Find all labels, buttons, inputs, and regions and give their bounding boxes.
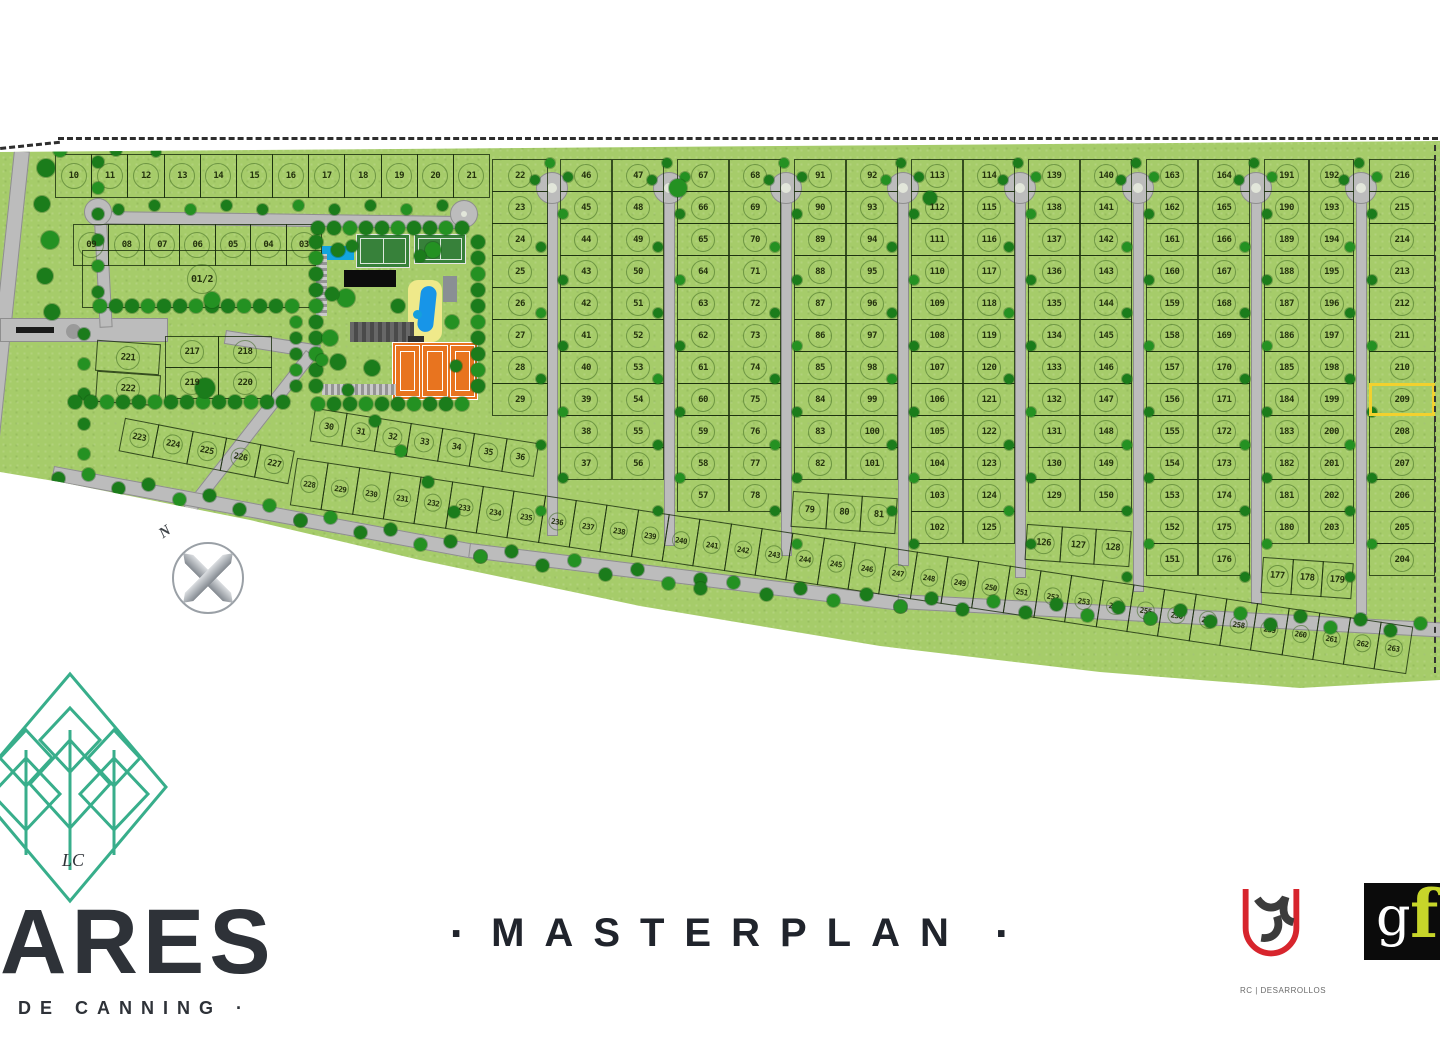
lot-number: 218 bbox=[238, 347, 253, 357]
lot-number: 87 bbox=[815, 299, 825, 309]
tree bbox=[887, 506, 897, 516]
lot-44: 44 bbox=[560, 223, 612, 256]
tree bbox=[1354, 613, 1367, 626]
lot-218: 218 bbox=[218, 336, 272, 368]
lot-number: 162 bbox=[1165, 203, 1180, 213]
tree bbox=[78, 328, 90, 340]
tree bbox=[558, 275, 568, 285]
tree bbox=[909, 407, 919, 417]
lot-number: 123 bbox=[982, 459, 997, 469]
lot-number: 129 bbox=[1047, 491, 1062, 501]
lot-number: 159 bbox=[1165, 299, 1180, 309]
lot-129: 129 bbox=[1028, 479, 1080, 512]
lot-number: 111 bbox=[930, 235, 945, 245]
tree bbox=[309, 267, 323, 281]
lot-167: 167 bbox=[1198, 255, 1250, 288]
lot-38: 38 bbox=[560, 415, 612, 448]
lot-column: 140141142143144145146147148149150 bbox=[1080, 160, 1132, 512]
tree bbox=[1354, 158, 1364, 168]
lot-number: 147 bbox=[1099, 395, 1114, 405]
lot-number: 120 bbox=[982, 363, 997, 373]
tree bbox=[675, 407, 685, 417]
lot-number: 209 bbox=[1395, 395, 1410, 405]
lot-71: 71 bbox=[729, 255, 781, 288]
tree bbox=[1367, 473, 1377, 483]
page-title: MASTERPLAN bbox=[491, 911, 969, 956]
tree bbox=[1262, 209, 1272, 219]
tree bbox=[309, 283, 323, 297]
tree bbox=[1122, 242, 1132, 252]
tree bbox=[1019, 606, 1032, 619]
tree bbox=[1004, 374, 1014, 384]
lot-135: 135 bbox=[1028, 287, 1080, 320]
tree bbox=[909, 341, 919, 351]
lot-number: 42 bbox=[581, 299, 591, 309]
lot-number: 164 bbox=[1217, 171, 1232, 181]
lot-number: 127 bbox=[1070, 540, 1085, 551]
tree bbox=[78, 418, 90, 430]
tree bbox=[455, 221, 469, 235]
lot-number: 98 bbox=[867, 363, 877, 373]
lot-number: 20 bbox=[430, 171, 440, 181]
lot-137: 137 bbox=[1028, 223, 1080, 256]
tree bbox=[1026, 275, 1036, 285]
lot-number: 199 bbox=[1324, 395, 1339, 405]
tree bbox=[860, 588, 873, 601]
street-road bbox=[1133, 196, 1144, 592]
tree bbox=[269, 299, 283, 313]
lot-number: 253 bbox=[1077, 596, 1090, 607]
tree bbox=[956, 603, 969, 616]
lot-48: 48 bbox=[612, 191, 664, 224]
lot-number: 36 bbox=[515, 452, 526, 463]
lot-number: 28 bbox=[515, 363, 525, 373]
tree bbox=[343, 397, 357, 411]
rc-caption: RC | DESARROLLOS bbox=[1208, 986, 1358, 995]
tree bbox=[309, 331, 323, 345]
lot-number: 25 bbox=[515, 267, 525, 277]
tree bbox=[779, 158, 789, 168]
lot-row-bottom: 798081 bbox=[791, 491, 897, 534]
compass-north-label: N bbox=[156, 522, 175, 542]
lot-number: 11 bbox=[105, 171, 115, 181]
lot-number: 168 bbox=[1217, 299, 1232, 309]
lot-number: 37 bbox=[581, 459, 591, 469]
tree bbox=[92, 286, 104, 298]
tree bbox=[797, 172, 807, 182]
lot-number: 78 bbox=[750, 491, 760, 501]
tree bbox=[244, 395, 258, 409]
lot-114: 114 bbox=[963, 159, 1015, 192]
lot-157: 157 bbox=[1146, 351, 1198, 384]
tree bbox=[471, 267, 485, 281]
lot-27: 27 bbox=[492, 319, 548, 352]
lot-number: 237 bbox=[582, 521, 595, 532]
lot-number: 58 bbox=[698, 459, 708, 469]
lot-117: 117 bbox=[963, 255, 1015, 288]
lot-number: 186 bbox=[1279, 331, 1294, 341]
lot-128: 128 bbox=[1094, 529, 1132, 567]
tree bbox=[290, 332, 302, 344]
lot-number: 195 bbox=[1324, 267, 1339, 277]
lot-number: 14 bbox=[213, 171, 223, 181]
lot-number: 115 bbox=[982, 203, 997, 213]
lot-number: 181 bbox=[1279, 491, 1294, 501]
masterplan-title-block: · MASTERPLAN · bbox=[420, 906, 1040, 960]
lot-number: 31 bbox=[355, 427, 366, 438]
tree bbox=[827, 594, 840, 607]
tree bbox=[662, 158, 672, 168]
lot-97: 97 bbox=[846, 319, 898, 352]
lot-29: 29 bbox=[492, 383, 548, 416]
lot-number: 166 bbox=[1217, 235, 1232, 245]
title-dot: · bbox=[995, 906, 1010, 960]
tree bbox=[1144, 539, 1154, 549]
lot-104: 104 bbox=[911, 447, 963, 480]
lot-number: 41 bbox=[581, 331, 591, 341]
lot-220: 220 bbox=[218, 367, 272, 399]
tree bbox=[1372, 172, 1382, 182]
lot-number: 85 bbox=[815, 363, 825, 373]
lot-number: 75 bbox=[750, 395, 760, 405]
lot-row: 217218 bbox=[166, 336, 272, 368]
lot-14: 14 bbox=[200, 154, 237, 198]
lot-number: 175 bbox=[1217, 523, 1232, 533]
lot-154: 154 bbox=[1146, 447, 1198, 480]
tree bbox=[324, 511, 337, 524]
lot-number: 154 bbox=[1165, 459, 1180, 469]
lot-213: 213 bbox=[1369, 255, 1435, 288]
lot-number: 241 bbox=[705, 540, 718, 551]
lot-number: 197 bbox=[1324, 331, 1339, 341]
lot-68: 68 bbox=[729, 159, 781, 192]
lot-40: 40 bbox=[560, 351, 612, 384]
lot-69: 69 bbox=[729, 191, 781, 224]
gf-logo: g f bbox=[1364, 883, 1440, 960]
lot-number: 198 bbox=[1324, 363, 1339, 373]
tree bbox=[653, 440, 663, 450]
tree bbox=[93, 299, 107, 313]
tennis-courts bbox=[392, 342, 478, 400]
lot-number: 174 bbox=[1217, 491, 1232, 501]
tree bbox=[792, 209, 802, 219]
lot-number: 230 bbox=[365, 488, 378, 499]
lot-column: 192193194195196197198199200201202203 bbox=[1309, 160, 1354, 544]
lot-193: 193 bbox=[1309, 191, 1354, 224]
lot-16: 16 bbox=[272, 154, 309, 198]
lot-number: 231 bbox=[396, 493, 409, 504]
lot-number: 96 bbox=[867, 299, 877, 309]
tree bbox=[558, 341, 568, 351]
lot-161: 161 bbox=[1146, 223, 1198, 256]
street-road bbox=[898, 196, 909, 566]
lot-102: 102 bbox=[911, 511, 963, 544]
lot-number: 09 bbox=[86, 240, 96, 250]
tree bbox=[909, 209, 919, 219]
lot-number: 82 bbox=[815, 459, 825, 469]
tree bbox=[1240, 242, 1250, 252]
lot-number: 117 bbox=[982, 267, 997, 277]
lot-number: 135 bbox=[1047, 299, 1062, 309]
tree bbox=[325, 287, 339, 301]
lot-number: 177 bbox=[1269, 570, 1284, 581]
tree bbox=[887, 308, 897, 318]
tree bbox=[384, 523, 397, 536]
tree bbox=[375, 221, 389, 235]
tree bbox=[337, 289, 355, 307]
lot-111: 111 bbox=[911, 223, 963, 256]
lot-number: 03 bbox=[299, 240, 309, 250]
tree bbox=[1204, 615, 1217, 628]
lot-number: 156 bbox=[1165, 395, 1180, 405]
lot-number: 40 bbox=[581, 363, 591, 373]
lot-204: 204 bbox=[1369, 543, 1435, 576]
lot-number: 130 bbox=[1047, 459, 1062, 469]
tree bbox=[293, 200, 304, 211]
lot-number: 38 bbox=[581, 427, 591, 437]
lot-number: 240 bbox=[674, 535, 687, 546]
lot-number: 76 bbox=[750, 427, 760, 437]
tree bbox=[151, 147, 161, 157]
lot-number: 141 bbox=[1099, 203, 1114, 213]
lot-number: 77 bbox=[750, 459, 760, 469]
tree bbox=[407, 397, 421, 411]
tree bbox=[1240, 374, 1250, 384]
lot-185: 185 bbox=[1264, 351, 1309, 384]
tree bbox=[662, 577, 675, 590]
lot-189: 189 bbox=[1264, 223, 1309, 256]
lot-number: 18 bbox=[358, 171, 368, 181]
tree bbox=[675, 209, 685, 219]
tree bbox=[391, 397, 405, 411]
tree bbox=[1345, 242, 1355, 252]
tree bbox=[44, 304, 60, 320]
lot-number: 107 bbox=[930, 363, 945, 373]
lot-number: 200 bbox=[1324, 427, 1339, 437]
tree bbox=[221, 200, 232, 211]
tree bbox=[228, 395, 242, 409]
tree bbox=[1122, 308, 1132, 318]
tree bbox=[558, 209, 568, 219]
lot-number: 109 bbox=[930, 299, 945, 309]
tree bbox=[149, 200, 160, 211]
lot-171: 171 bbox=[1198, 383, 1250, 416]
tree bbox=[1234, 175, 1244, 185]
lot-row-north: 101112131415161718192021 bbox=[56, 154, 490, 198]
lot-number: 12 bbox=[141, 171, 151, 181]
lot-number: 220 bbox=[238, 378, 253, 388]
street-road bbox=[547, 196, 558, 536]
tree bbox=[37, 159, 55, 177]
lot-159: 159 bbox=[1146, 287, 1198, 320]
lot-123: 123 bbox=[963, 447, 1015, 480]
lot-number: 180 bbox=[1279, 523, 1294, 533]
tree bbox=[727, 576, 740, 589]
lot-number: 150 bbox=[1099, 491, 1114, 501]
lot-number: 27 bbox=[515, 331, 525, 341]
lot-number: 01/2 bbox=[191, 274, 213, 285]
lot-61: 61 bbox=[677, 351, 729, 384]
tree bbox=[471, 331, 485, 345]
tree bbox=[1339, 175, 1349, 185]
lot-number: 122 bbox=[982, 427, 997, 437]
lot-number: 138 bbox=[1047, 203, 1062, 213]
lot-number: 184 bbox=[1279, 395, 1294, 405]
tree bbox=[233, 503, 246, 516]
lot-127: 127 bbox=[1059, 526, 1097, 564]
street-road bbox=[1015, 196, 1026, 578]
tree bbox=[770, 308, 780, 318]
tree bbox=[1234, 607, 1247, 620]
tree bbox=[545, 158, 555, 168]
tree bbox=[354, 526, 367, 539]
lot-number: 30 bbox=[323, 422, 334, 433]
tree bbox=[563, 172, 573, 182]
tree bbox=[770, 374, 780, 384]
lot-number: 103 bbox=[930, 491, 945, 501]
lot-58: 58 bbox=[677, 447, 729, 480]
tree bbox=[909, 539, 919, 549]
lot-number: 146 bbox=[1099, 363, 1114, 373]
lot-number: 243 bbox=[767, 549, 780, 560]
tree bbox=[331, 243, 345, 257]
tree bbox=[257, 204, 268, 215]
lot-133: 133 bbox=[1028, 351, 1080, 384]
tree bbox=[237, 299, 251, 313]
lot-number: 59 bbox=[698, 427, 708, 437]
lot-number: 73 bbox=[750, 331, 760, 341]
lot-number: 134 bbox=[1047, 331, 1062, 341]
tree bbox=[414, 538, 427, 551]
lot-number: 165 bbox=[1217, 203, 1232, 213]
parking bbox=[322, 384, 396, 395]
tree bbox=[669, 179, 687, 197]
tree bbox=[894, 600, 907, 613]
tree bbox=[391, 221, 405, 235]
lot-number: 61 bbox=[698, 363, 708, 373]
tree bbox=[365, 200, 376, 211]
tree bbox=[401, 204, 412, 215]
lot-number: 234 bbox=[489, 507, 502, 518]
lot-number: 118 bbox=[982, 299, 997, 309]
lot-number: 100 bbox=[865, 427, 880, 437]
lot-57: 57 bbox=[677, 479, 729, 512]
lot-number: 34 bbox=[451, 442, 462, 453]
lot-110: 110 bbox=[911, 255, 963, 288]
tree bbox=[530, 175, 540, 185]
gf-letter-f: f bbox=[1410, 883, 1438, 953]
tree bbox=[110, 144, 122, 156]
lot-number: 50 bbox=[633, 267, 643, 277]
lot-number: 125 bbox=[982, 523, 997, 533]
lot-number: 13 bbox=[177, 171, 187, 181]
lot-number: 21 bbox=[467, 171, 477, 181]
tree bbox=[276, 395, 290, 409]
lot-number: 235 bbox=[520, 511, 533, 522]
lot-number: 57 bbox=[698, 491, 708, 501]
tree bbox=[253, 299, 267, 313]
lot-number: 23 bbox=[515, 203, 525, 213]
lot-number: 153 bbox=[1165, 491, 1180, 501]
lot-number: 249 bbox=[953, 577, 966, 588]
tree bbox=[189, 299, 203, 313]
lot-number: 90 bbox=[815, 203, 825, 213]
lot-66: 66 bbox=[677, 191, 729, 224]
tree bbox=[78, 358, 90, 370]
lot-42: 42 bbox=[560, 287, 612, 320]
lot-number: 116 bbox=[982, 235, 997, 245]
lot-number: 236 bbox=[551, 516, 564, 527]
tree bbox=[290, 348, 302, 360]
lot-number: 215 bbox=[1395, 203, 1410, 213]
lot-number: 26 bbox=[515, 299, 525, 309]
tree bbox=[437, 200, 448, 211]
lot-number: 16 bbox=[286, 171, 296, 181]
lot-number: 65 bbox=[698, 235, 708, 245]
lot-number: 170 bbox=[1217, 363, 1232, 373]
lot-88: 88 bbox=[794, 255, 846, 288]
lot-85: 85 bbox=[794, 351, 846, 384]
lot-13: 13 bbox=[164, 154, 201, 198]
lot-199: 199 bbox=[1309, 383, 1354, 416]
lot-10: 10 bbox=[55, 154, 92, 198]
tree bbox=[327, 397, 341, 411]
lot-63: 63 bbox=[677, 287, 729, 320]
lot-number: 39 bbox=[581, 395, 591, 405]
lot-number: 142 bbox=[1099, 235, 1114, 245]
tree bbox=[1013, 158, 1023, 168]
lot-number: 139 bbox=[1047, 171, 1062, 181]
tree bbox=[422, 476, 434, 488]
lot-151: 151 bbox=[1146, 543, 1198, 576]
lot-number: 128 bbox=[1105, 542, 1120, 553]
tree bbox=[599, 568, 612, 581]
lot-number: 263 bbox=[1387, 643, 1400, 654]
tree bbox=[794, 582, 807, 595]
tree bbox=[316, 354, 328, 366]
tree bbox=[1345, 506, 1355, 516]
lot-number: 104 bbox=[930, 459, 945, 469]
lot-90: 90 bbox=[794, 191, 846, 224]
lot-number: 250 bbox=[984, 582, 997, 593]
lot-number: 238 bbox=[613, 525, 626, 536]
tree bbox=[343, 221, 357, 235]
tree bbox=[675, 341, 685, 351]
tree bbox=[141, 299, 155, 313]
brand-logo: LC ARES DE CANNING · bbox=[0, 660, 320, 1040]
lot-141: 141 bbox=[1080, 191, 1132, 224]
brand-monogram: LC bbox=[61, 850, 85, 870]
lot-205: 205 bbox=[1369, 511, 1435, 544]
tree bbox=[647, 175, 657, 185]
tree bbox=[100, 395, 114, 409]
tree bbox=[148, 395, 162, 409]
lot-number: 83 bbox=[815, 427, 825, 437]
tennis-court bbox=[422, 345, 447, 397]
lot-number: 47 bbox=[633, 171, 643, 181]
lot-number: 74 bbox=[750, 363, 760, 373]
lot-195: 195 bbox=[1309, 255, 1354, 288]
lot-number: 211 bbox=[1395, 331, 1410, 341]
tree bbox=[109, 299, 123, 313]
tree bbox=[448, 506, 460, 518]
tree bbox=[1026, 539, 1036, 549]
lot-169: 169 bbox=[1198, 319, 1250, 352]
lot-47: 47 bbox=[612, 159, 664, 192]
lot-45: 45 bbox=[560, 191, 612, 224]
lot-number: 183 bbox=[1279, 427, 1294, 437]
tree bbox=[294, 514, 307, 527]
